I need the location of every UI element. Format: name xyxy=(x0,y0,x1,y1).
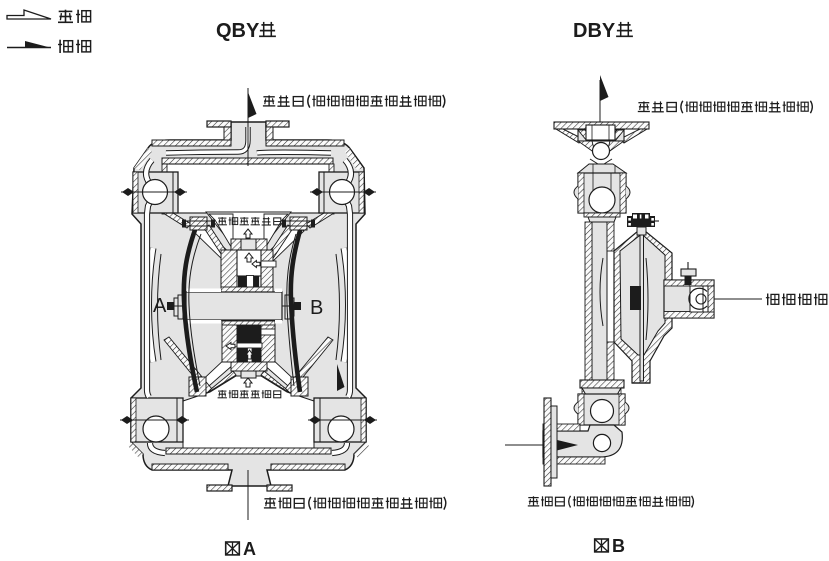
svg-text:B: B xyxy=(612,536,625,556)
svg-text:A: A xyxy=(243,539,256,559)
svg-text:A: A xyxy=(153,295,167,317)
svg-text:B: B xyxy=(310,297,323,319)
svg-text:DBY: DBY xyxy=(573,20,616,42)
svg-text:QBY: QBY xyxy=(216,20,260,42)
